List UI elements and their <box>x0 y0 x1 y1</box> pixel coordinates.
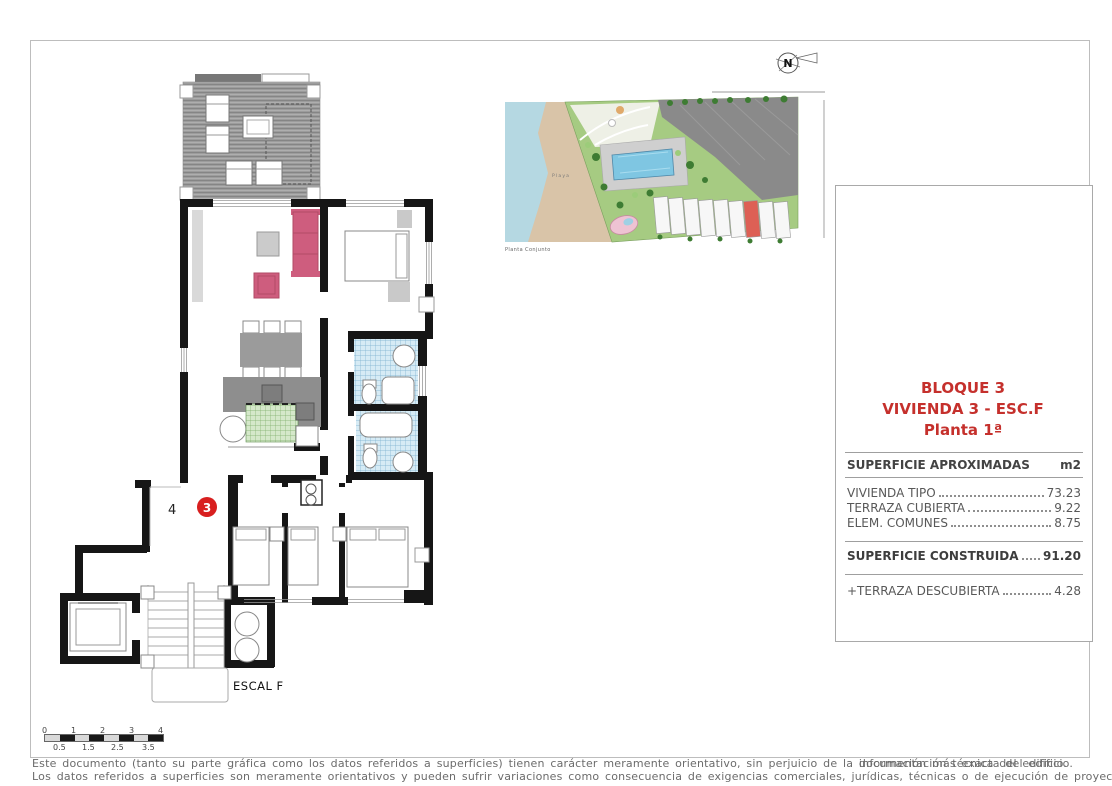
areas-header-unit: m2 <box>1060 458 1081 472</box>
dining-area <box>240 321 302 379</box>
sofa <box>291 209 320 277</box>
row-value: 73.23 <box>1047 486 1081 501</box>
sink <box>393 345 415 367</box>
armchair <box>254 273 279 298</box>
disclaimer-line-2: Los datos referidos a superficies son me… <box>32 770 1086 783</box>
unit-marker: 3 <box>197 497 217 517</box>
beach-label: Playa <box>552 173 570 179</box>
row-label: ELEM. COMUNES <box>847 516 948 531</box>
dotted-leader <box>939 495 1044 497</box>
overlapped-text-b: información más exacta del edificio. <box>859 757 1073 770</box>
coffee-table <box>257 232 279 256</box>
toilet <box>363 448 377 468</box>
dotted-leader <box>1003 593 1052 595</box>
extra-row: +TERRAZA DESCUBIERTA 4.28 <box>845 574 1083 607</box>
dining-table <box>240 333 302 367</box>
toilet <box>362 384 376 404</box>
table-row: ELEM. COMUNES 8.75 <box>847 516 1081 531</box>
dotted-leader <box>1022 558 1041 560</box>
block-title: BLOQUE 3 <box>835 378 1091 399</box>
row-label: VIVIENDA TIPO <box>847 486 936 501</box>
areas-table: SUPERFICIE APROXIMADAS m2 VIVIENDA TIPO … <box>845 452 1083 607</box>
scale-bar-strip <box>45 735 163 741</box>
terrace-table <box>243 116 273 138</box>
total-value: 91.20 <box>1043 549 1081 563</box>
extra-value: 4.28 <box>1054 584 1081 598</box>
stairs <box>141 583 231 702</box>
bathtub <box>360 413 412 437</box>
scale-tick: 3.5 <box>142 743 155 752</box>
scale-tick: 2 <box>100 726 105 735</box>
disclaimer: Este documento (tanto su parte gráfica c… <box>32 757 1086 783</box>
dwelling-title: VIVIENDA 3 - ESC.F <box>835 399 1091 420</box>
kitchen <box>218 377 321 446</box>
kitchen-table <box>220 416 246 442</box>
townhouses <box>653 196 790 238</box>
dryer <box>235 638 259 662</box>
living-room <box>192 209 320 302</box>
sink <box>393 452 413 472</box>
scale-tick: 3 <box>129 726 134 735</box>
north-arrow-icon: N <box>776 53 817 73</box>
row-value: 9.22 <box>1054 501 1081 516</box>
row-label: TERRAZA CUBIERTA <box>847 501 965 516</box>
scale-tick: 1 <box>71 726 76 735</box>
scale-tick: 2.5 <box>111 743 124 752</box>
bathroom-2 <box>356 411 418 472</box>
scale-tick: 4 <box>158 726 163 735</box>
unit-number-label: 3 <box>203 501 211 515</box>
areas-header: SUPERFICIE APROXIMADAS m2 <box>845 452 1083 478</box>
areas-header-label: SUPERFICIE APROXIMADAS <box>847 458 1030 472</box>
stair-landing <box>152 668 228 702</box>
washer <box>235 612 259 636</box>
site-plan: N Playa P <box>500 45 835 257</box>
total-label: SUPERFICIE CONSTRUIDA <box>847 549 1019 563</box>
row-value: 8.75 <box>1054 516 1081 531</box>
total-row: SUPERFICIE CONSTRUIDA 91.20 <box>845 541 1083 570</box>
dotted-leader <box>968 510 1051 512</box>
disclaimer-line-1: Este documento (tanto su parte gráfica c… <box>32 757 1086 770</box>
dotted-leader <box>951 525 1051 527</box>
boiler-closet <box>301 480 322 505</box>
svg-text:N: N <box>783 57 792 70</box>
kitchen-floor <box>246 404 298 442</box>
shower <box>382 377 414 404</box>
stair-label: ESCAL F <box>233 679 284 693</box>
highlighted-block <box>743 200 760 237</box>
table-row: TERRAZA CUBIERTA 9.22 <box>847 501 1081 516</box>
table-row: VIVIENDA TIPO 73.23 <box>847 486 1081 501</box>
extra-label: +TERRAZA DESCUBIERTA <box>847 584 1000 598</box>
terrace <box>180 74 320 202</box>
scale-tick: 0.5 <box>53 743 66 752</box>
site-plan-caption: Planta Conjunto <box>505 247 551 253</box>
title-block: BLOQUE 3 VIVIENDA 3 - ESC.F Planta 1ª <box>835 378 1091 441</box>
nightstand <box>388 282 410 302</box>
hall-number-label: 4 <box>168 503 176 518</box>
bedrooms-bottom <box>233 480 408 587</box>
elevator <box>70 603 126 651</box>
wardrobe <box>192 210 203 302</box>
pillow <box>396 234 407 278</box>
nightstand <box>397 210 412 228</box>
floor-title: Planta 1ª <box>835 420 1091 441</box>
floor-plan-drawing: 4 3 ESCAL F <box>30 45 470 710</box>
bathroom-1 <box>354 339 418 404</box>
scale-tick: 0 <box>42 726 47 735</box>
laundry-room <box>235 612 259 662</box>
scale-bar: 0 1 2 3 4 0.5 1.5 2.5 3.5 <box>45 726 165 754</box>
scale-tick: 1.5 <box>82 743 95 752</box>
bedroom-1 <box>345 210 412 302</box>
